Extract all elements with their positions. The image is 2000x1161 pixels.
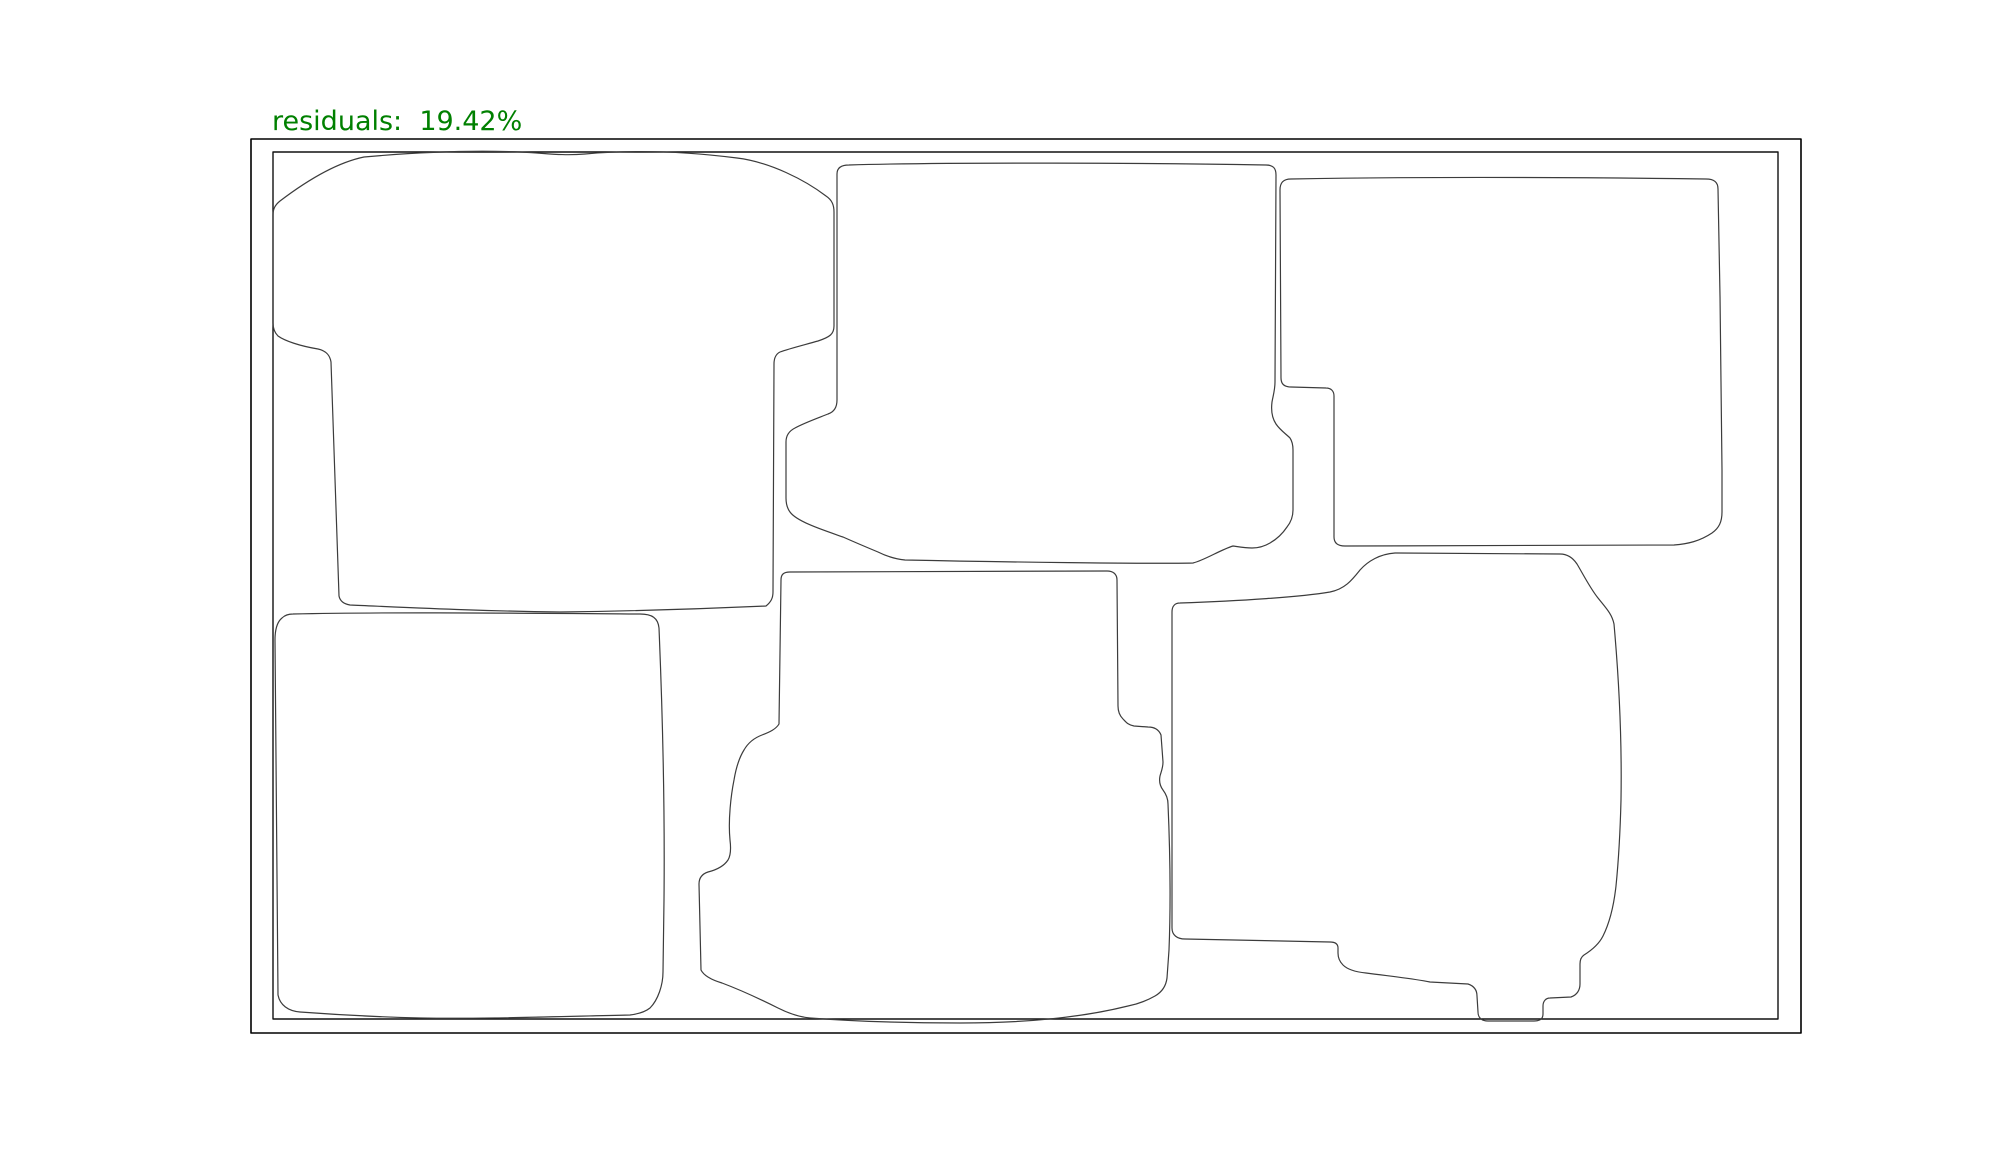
sheet-rect — [273, 152, 1778, 1019]
nested-parts — [273, 151, 1722, 1023]
part-1-front-mat-top-left — [273, 151, 834, 612]
part-3-boot-liner-top-right — [1280, 178, 1722, 547]
part-6-cargo-mat-bottom-right — [1172, 553, 1621, 1021]
nesting-canvas — [0, 0, 2000, 1161]
part-5-trunk-mat-bottom-middle — [699, 571, 1170, 1023]
outer-boundary-rect — [251, 139, 1801, 1033]
part-4-rear-mat-bottom-left — [275, 613, 664, 1018]
nesting-figure: residuals: 19.42% — [0, 0, 2000, 1161]
part-2-trunk-mat-top-middle — [786, 163, 1293, 563]
